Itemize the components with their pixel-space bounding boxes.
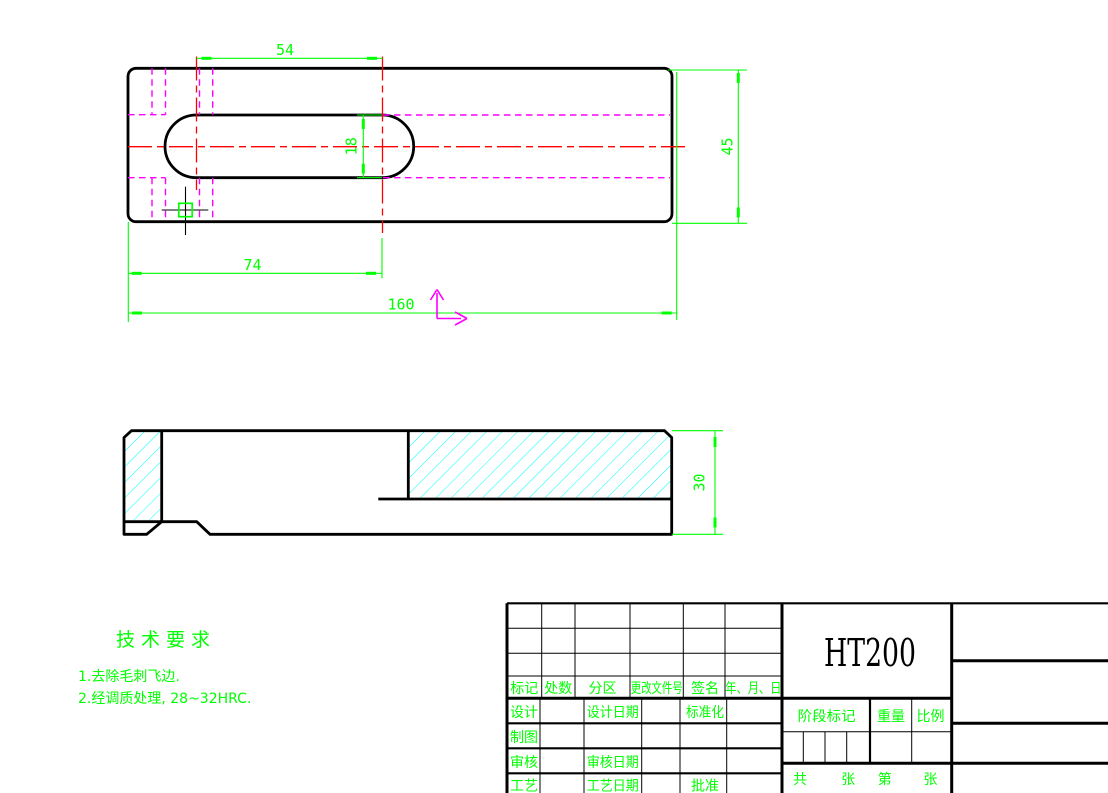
label-sheet-no: 第 — [878, 771, 892, 788]
dim-74-text: 74 — [243, 256, 261, 274]
dim-45-text: 45 — [719, 137, 737, 155]
label-check: 审核 — [510, 755, 538, 771]
label-process-date: 工艺日期 — [587, 779, 639, 793]
crosshair-cursor — [162, 187, 209, 235]
label-draft: 制图 — [510, 730, 538, 746]
ucs-icon — [431, 290, 468, 326]
top-view[interactable]: 54 18 74 160 — [128, 41, 747, 325]
label-design-date: 设计日期 — [587, 705, 639, 721]
plate-outline[interactable] — [128, 68, 672, 221]
rev-header-date: 年、月、日 — [725, 681, 781, 697]
material-name: HT200 — [824, 631, 916, 675]
dim-18-text: 18 — [343, 137, 361, 155]
label-check-date: 审核日期 — [587, 755, 639, 771]
label-process: 工艺 — [510, 779, 538, 793]
label-weight: 重量 — [877, 709, 905, 725]
rev-header-change-doc: 更改文件号 — [631, 681, 683, 697]
section-view[interactable]: 30 — [124, 431, 723, 535]
rev-header-mark: 标记 — [510, 681, 538, 697]
hidden-lines[interactable] — [128, 68, 670, 221]
dim-54-text: 54 — [276, 41, 294, 59]
dim-30-text: 30 — [691, 473, 709, 491]
dimension-160[interactable]: 160 — [128, 72, 676, 320]
label-approve: 批准 — [691, 779, 719, 793]
section-hatch-left — [124, 431, 162, 522]
tech-item-1: 1.去除毛刺飞边. — [78, 669, 180, 685]
dimension-74[interactable]: 74 — [128, 222, 382, 322]
rev-header-signature: 签名 — [691, 680, 719, 697]
rev-header-zone: 分区 — [589, 681, 617, 697]
tech-item-2: 2.经调质处理, 28~32HRC. — [78, 691, 251, 707]
section-hatch-right — [408, 431, 671, 499]
dim-160-text: 160 — [387, 296, 414, 314]
label-scale: 比例 — [917, 709, 945, 725]
title-block[interactable]: 标记 处数 分区 更改文件号 签名 年、月、日 设计 设计日期 标准化 制图 审… — [507, 603, 1108, 793]
rev-header-count: 处数 — [544, 681, 572, 697]
cad-canvas[interactable]: 54 18 74 160 — [0, 0, 1108, 793]
label-stage-mark: 阶段标记 — [798, 709, 856, 725]
label-sheet-total: 共 — [793, 772, 807, 788]
label-sheet-zhang1: 张 — [841, 772, 855, 788]
label-standardize: 标准化 — [686, 705, 724, 721]
label-design: 设计 — [510, 705, 538, 721]
revision-table[interactable]: 标记 处数 分区 更改文件号 签名 年、月、日 — [507, 603, 782, 698]
technical-requirements: 技术要求 1.去除毛刺飞边. 2.经调质处理, 28~32HRC. — [78, 629, 251, 707]
drawing-viewport[interactable]: 54 18 74 160 — [0, 0, 1108, 793]
label-sheet-zhang2: 张 — [924, 772, 938, 788]
tech-title: 技术要求 — [116, 629, 216, 651]
dimension-54[interactable]: 54 — [197, 41, 383, 60]
signature-block[interactable]: 设计 设计日期 标准化 制图 审核 审核日期 工艺 工艺日期 批准 — [507, 698, 782, 793]
dimension-30[interactable]: 30 — [672, 431, 723, 535]
